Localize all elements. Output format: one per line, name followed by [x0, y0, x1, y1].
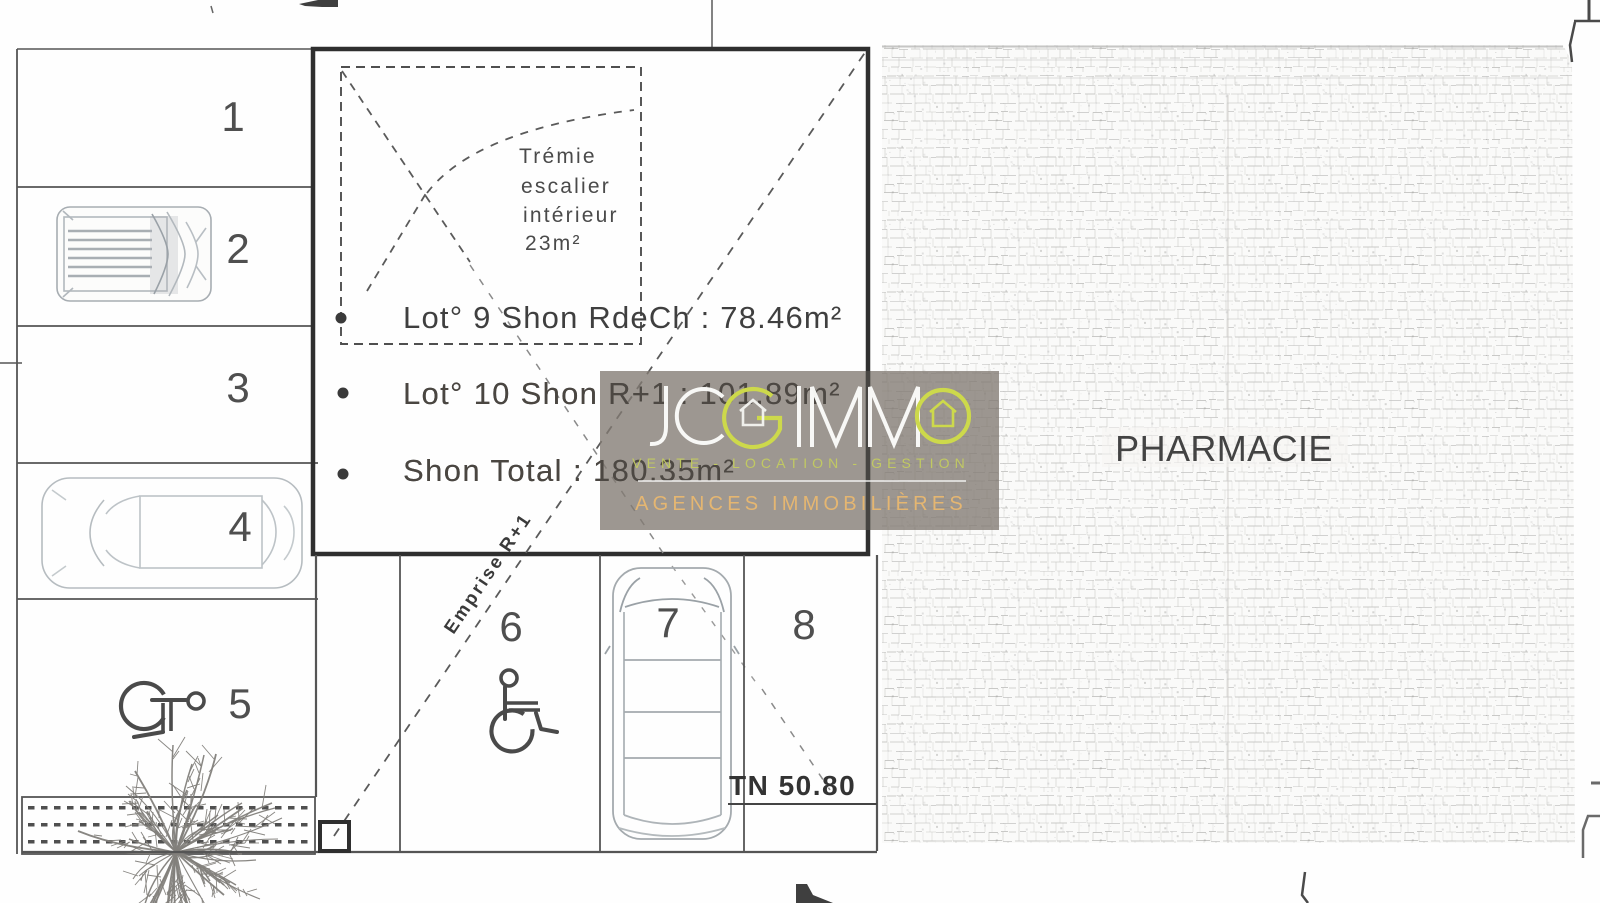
svg-text:4: 4 — [228, 503, 251, 550]
svg-text:2: 2 — [226, 225, 249, 272]
svg-text:PHARMACIE: PHARMACIE — [1115, 428, 1333, 469]
svg-text:1: 1 — [221, 93, 244, 140]
svg-text:5: 5 — [228, 680, 251, 727]
svg-text:8: 8 — [792, 601, 815, 648]
svg-text:AGENCES IMMOBILIÈRES: AGENCES IMMOBILIÈRES — [635, 492, 967, 515]
svg-text:Trémie: Trémie — [519, 145, 597, 168]
svg-text:VENTE - LOCATION - GESTION: VENTE - LOCATION - GESTION — [632, 455, 970, 471]
svg-text:23m²: 23m² — [525, 232, 582, 255]
svg-text:Lot° 9 Shon RdeCh : 78.46m²: Lot° 9 Shon RdeCh : 78.46m² — [403, 300, 842, 335]
svg-text:3: 3 — [226, 364, 249, 411]
svg-text:escalier: escalier — [521, 175, 611, 198]
svg-text:intérieur: intérieur — [523, 204, 619, 227]
svg-text:6: 6 — [499, 603, 522, 650]
svg-text:Lot° 10 Shon R+1 : 101.89m²: Lot° 10 Shon R+1 : 101.89m² — [403, 376, 841, 411]
svg-text:TN 50.80: TN 50.80 — [729, 770, 856, 801]
svg-text:7: 7 — [656, 599, 679, 646]
